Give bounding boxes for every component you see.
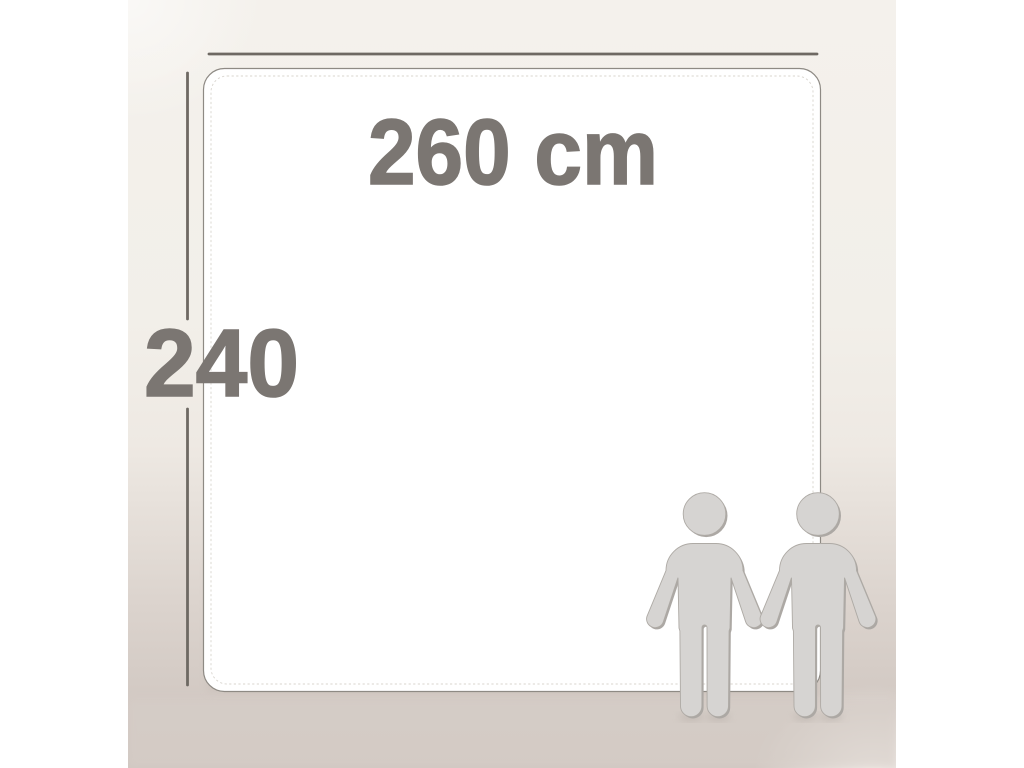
svg-text:260 cm: 260 cm	[368, 100, 658, 204]
svg-text:240: 240	[144, 310, 299, 417]
